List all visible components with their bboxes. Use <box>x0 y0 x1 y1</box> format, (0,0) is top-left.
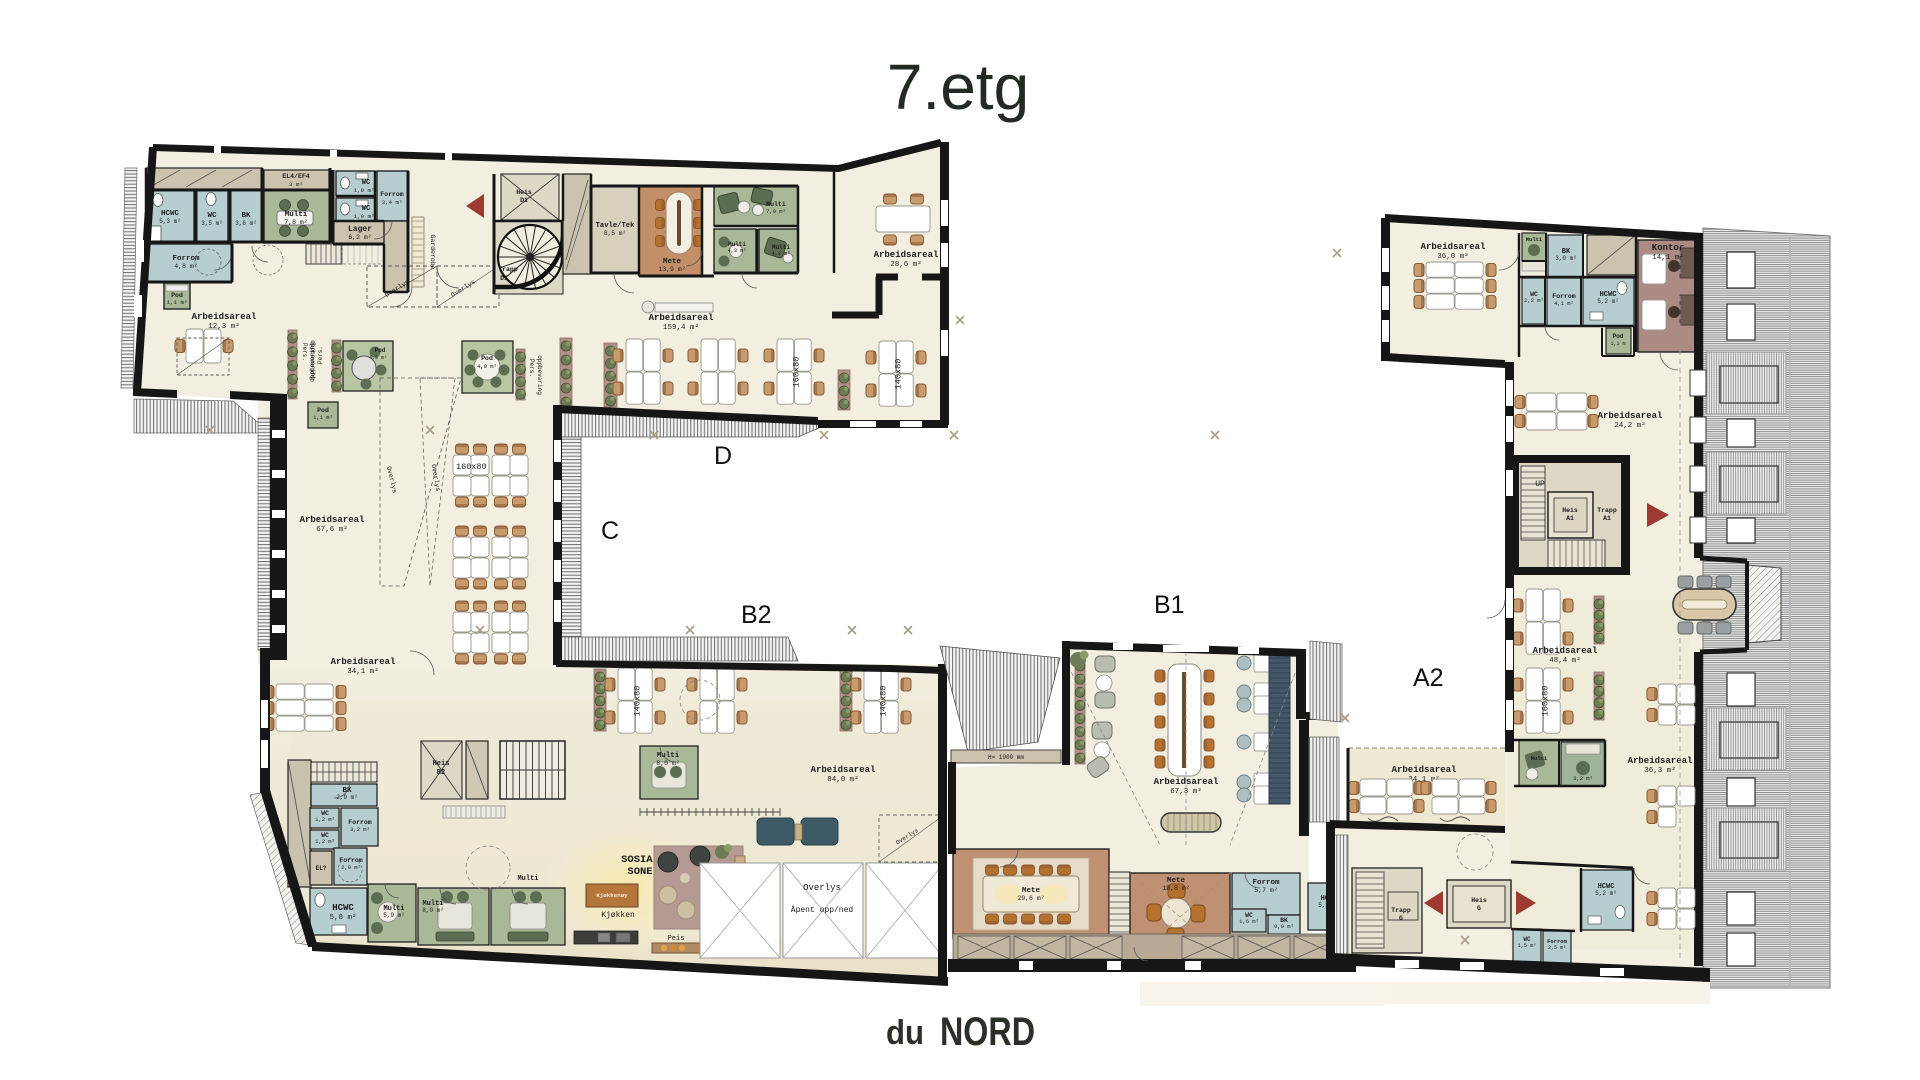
svg-text:8,0 m²: 8,0 m² <box>656 760 679 767</box>
svg-text:140x80: 140x80 <box>633 686 643 717</box>
svg-text:Multi: Multi <box>1526 236 1543 243</box>
svg-text:Åpent opp/ned: Åpent opp/ned <box>791 906 854 915</box>
svg-text:159,4 m²: 159,4 m² <box>663 323 699 332</box>
svg-text:5,9 m²: 5,9 m² <box>383 912 405 919</box>
svg-text:Forrom: Forrom <box>1252 879 1280 887</box>
svg-text:Arbeidsareal: Arbeidsareal <box>1533 646 1598 656</box>
svg-text:Multi: Multi <box>1531 755 1548 762</box>
svg-text:G: G <box>1477 905 1481 912</box>
svg-text:HCWC: HCWC <box>332 903 354 913</box>
svg-text:Overlys: Overlys <box>803 883 841 893</box>
svg-text:3,0 m²: 3,0 m² <box>1555 255 1577 262</box>
svg-text:2,5 m²: 2,5 m² <box>1548 945 1566 951</box>
svg-text:160x80: 160x80 <box>456 462 487 472</box>
svg-text:4,9 m²: 4,9 m² <box>477 363 497 370</box>
svg-text:Forrom: Forrom <box>172 255 200 263</box>
svg-text:Multi: Multi <box>728 241 746 248</box>
svg-text:3,2 m²: 3,2 m² <box>1573 775 1593 782</box>
svg-text:Arbeidsareal: Arbeidsareal <box>300 515 365 525</box>
svg-text:84,0 m²: 84,0 m² <box>827 775 859 784</box>
svg-text:Multi: Multi <box>772 244 790 251</box>
svg-text:G: G <box>1399 915 1403 922</box>
svg-text:WC: WC <box>207 212 217 220</box>
svg-text:Heis: Heis <box>516 189 532 196</box>
svg-text:Pers.: Pers. <box>528 359 535 377</box>
svg-text:Arbeidsareal: Arbeidsareal <box>1628 756 1693 766</box>
svg-text:36,3 m²: 36,3 m² <box>1644 766 1676 775</box>
svg-text:NORD: NORD <box>940 1010 1035 1054</box>
svg-text:4,9 m²: 4,9 m² <box>369 355 387 361</box>
svg-text:5,2 m²: 5,2 m² <box>1597 298 1619 305</box>
svg-text:BK: BK <box>241 212 251 220</box>
svg-text:34,1 m²: 34,1 m² <box>347 667 379 676</box>
svg-text:Kontor: Kontor <box>1652 243 1684 253</box>
svg-text:Arbeidsareal: Arbeidsareal <box>331 657 396 667</box>
svg-text:WC: WC <box>362 205 370 213</box>
svg-text:3,2 m²: 3,2 m² <box>350 826 370 833</box>
svg-text:3,6 m²: 3,6 m² <box>235 220 257 227</box>
svg-text:Multi: Multi <box>657 752 680 760</box>
svg-text:4,1 m²: 4,1 m² <box>1554 300 1574 307</box>
svg-text:3,5 m²: 3,5 m² <box>201 220 223 227</box>
svg-text:B1: B1 <box>1154 591 1185 619</box>
svg-text:2,9 m²: 2,9 m² <box>341 864 361 871</box>
svg-text:Kjøkken: Kjøkken <box>601 911 635 920</box>
svg-text:Mete: Mete <box>1022 887 1041 895</box>
svg-text:oppbevaring: oppbevaring <box>536 355 543 395</box>
svg-text:Pod: Pod <box>171 292 183 299</box>
svg-text:7,8 m²: 7,8 m² <box>284 219 307 226</box>
svg-text:4,8 m²: 4,8 m² <box>174 263 197 270</box>
svg-text:Multi: Multi <box>766 201 786 208</box>
svg-text:Heis: Heis <box>1562 507 1578 514</box>
svg-text:C: C <box>601 517 619 545</box>
svg-text:D1: D1 <box>500 275 508 282</box>
svg-text:1,9 m²: 1,9 m² <box>354 187 375 194</box>
svg-text:1,2 m²: 1,2 m² <box>315 816 335 823</box>
svg-text:Multi: Multi <box>285 211 308 219</box>
svg-text:28,6 m²: 28,6 m² <box>890 260 922 269</box>
svg-text:Forrom: Forrom <box>348 819 372 826</box>
svg-text:8,5 m²: 8,5 m² <box>604 230 626 237</box>
svg-text:Pers.: Pers. <box>301 343 308 361</box>
svg-text:UP: UP <box>1535 480 1545 489</box>
svg-text:Pod: Pod <box>317 407 329 414</box>
svg-text:7.etg: 7.etg <box>887 51 1029 123</box>
svg-text:12,3 m²: 12,3 m² <box>208 322 240 331</box>
svg-text:14,1 m²: 14,1 m² <box>1652 253 1684 262</box>
svg-text:Peis: Peis <box>668 935 685 943</box>
svg-text:Arbeidsareal: Arbeidsareal <box>649 313 714 323</box>
svg-text:Arbeidsareal: Arbeidsareal <box>1392 765 1457 775</box>
svg-text:8,0 m²: 8,0 m² <box>422 907 444 914</box>
svg-text:HCWC: HCWC <box>161 210 180 218</box>
svg-text:29,6 m²: 29,6 m² <box>1017 895 1044 902</box>
svg-text:Forrom: Forrom <box>1552 293 1576 300</box>
svg-text:SONE: SONE <box>627 866 652 878</box>
svg-text:24,2 m²: 24,2 m² <box>1614 421 1646 430</box>
svg-text:Forrom: Forrom <box>380 191 404 198</box>
svg-text:1,5 m²: 1,5 m² <box>1518 943 1537 949</box>
svg-text:Arbeidsareal: Arbeidsareal <box>811 765 876 775</box>
svg-text:du: du <box>886 1014 924 1052</box>
svg-text:48,4 m²: 48,4 m² <box>1549 656 1581 665</box>
svg-text:36,0 m²: 36,0 m² <box>1437 252 1469 261</box>
svg-text:7,0 m²: 7,0 m² <box>766 208 786 215</box>
svg-text:Arbeidsareal: Arbeidsareal <box>1421 242 1486 252</box>
svg-text:Arbeidsareal: Arbeidsareal <box>192 312 257 322</box>
svg-text:1,6 m²: 1,6 m² <box>1239 918 1259 925</box>
svg-text:SOSIAL: SOSIAL <box>621 854 659 866</box>
svg-text:160x80: 160x80 <box>1541 686 1551 717</box>
svg-text:Heis: Heis <box>433 760 450 768</box>
svg-text:oppbevaring: oppbevaring <box>309 342 316 382</box>
svg-text:B2: B2 <box>437 769 445 777</box>
svg-text:1,1 m: 1,1 m <box>1610 341 1625 347</box>
svg-text:H= 1900 mm: H= 1900 mm <box>988 754 1024 761</box>
svg-text:0,9 m²: 0,9 m² <box>1274 923 1294 930</box>
svg-text:Kjøkkenøy: Kjøkkenøy <box>596 892 628 899</box>
svg-text:1,2 m²: 1,2 m² <box>315 838 335 845</box>
svg-text:Pod: Pod <box>1613 333 1624 340</box>
svg-text:Heis: Heis <box>1471 897 1487 904</box>
svg-text:140x80: 140x80 <box>879 686 889 717</box>
svg-text:1,1 m²: 1,1 m² <box>313 414 333 421</box>
svg-text:Arbeidsareal: Arbeidsareal <box>874 250 939 260</box>
svg-text:D1: D1 <box>520 197 528 204</box>
svg-text:3 m²: 3 m² <box>289 181 303 188</box>
svg-text:Arbeidsareal: Arbeidsareal <box>1598 411 1663 421</box>
svg-text:Pers.: Pers. <box>317 346 324 364</box>
svg-text:Mete: Mete <box>663 258 682 266</box>
svg-text:6,2 m²: 6,2 m² <box>348 234 371 241</box>
svg-text:Pod: Pod <box>481 355 493 362</box>
svg-text:WC: WC <box>1523 936 1531 943</box>
svg-text:160x80: 160x80 <box>792 357 802 388</box>
svg-text:Trapp: Trapp <box>1597 507 1617 514</box>
svg-text:Trapp: Trapp <box>1391 907 1411 914</box>
svg-text:Garderobe: Garderobe <box>429 234 436 269</box>
svg-text:5,8 m²: 5,8 m² <box>329 913 356 922</box>
svg-text:67,6 m²: 67,6 m² <box>316 525 348 534</box>
svg-text:5,3 m²: 5,3 m² <box>159 218 181 225</box>
svg-text:1,1 m²: 1,1 m² <box>167 299 188 306</box>
svg-text:2,2 m²: 2,2 m² <box>1524 297 1544 304</box>
svg-text:Forrom: Forrom <box>1547 938 1568 945</box>
svg-text:140x80: 140x80 <box>894 359 904 390</box>
svg-text:Pod: Pod <box>375 347 386 354</box>
svg-text:EL?: EL? <box>316 865 327 872</box>
svg-text:4,3 m²: 4,3 m² <box>728 248 747 254</box>
svg-text:A1: A1 <box>1603 515 1611 522</box>
svg-text:3,4 m²: 3,4 m² <box>382 199 403 206</box>
svg-text:Trapp: Trapp <box>498 266 518 273</box>
svg-text:5,2 m²: 5,2 m² <box>1595 890 1617 897</box>
svg-text:WC: WC <box>362 179 370 187</box>
svg-text:1,9 m²: 1,9 m² <box>354 213 375 220</box>
svg-text:13,9 m²: 13,9 m² <box>658 266 685 273</box>
svg-text:Tavle/Tek: Tavle/Tek <box>596 222 636 230</box>
svg-text:Lager: Lager <box>348 225 372 234</box>
svg-text:A1: A1 <box>1566 515 1574 522</box>
svg-text:Mete: Mete <box>1167 877 1186 885</box>
svg-text:B2: B2 <box>741 601 772 629</box>
svg-text:4,2 m²: 4,2 m² <box>772 251 791 257</box>
svg-text:A2: A2 <box>1413 664 1444 692</box>
svg-text:18,8 m²: 18,8 m² <box>1162 885 1189 892</box>
svg-text:EL4/EF4: EL4/EF4 <box>282 173 309 180</box>
svg-text:Multi: Multi <box>517 875 538 883</box>
svg-text:D: D <box>714 442 732 470</box>
